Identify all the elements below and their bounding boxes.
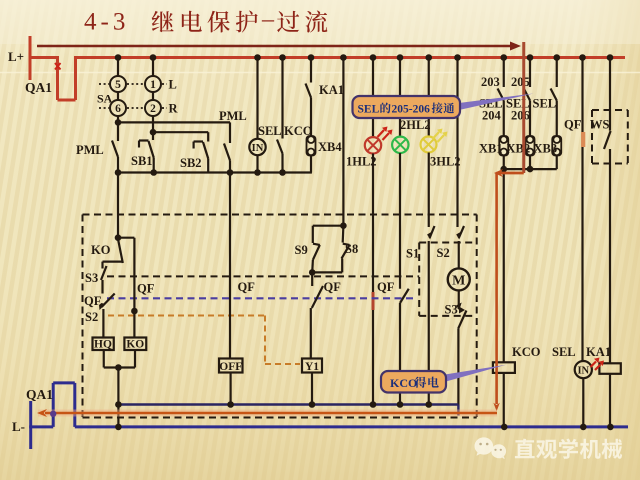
svg-text:QF: QF (84, 294, 102, 308)
svg-text:S2: S2 (85, 310, 98, 324)
svg-text:5: 5 (115, 79, 121, 91)
svg-text:L: L (169, 78, 177, 92)
svg-text:WS: WS (590, 118, 610, 132)
svg-text:XB2: XB2 (507, 142, 531, 156)
svg-text:XB4: XB4 (318, 140, 342, 154)
svg-text:XB3: XB3 (534, 142, 558, 156)
svg-text:S8: S8 (345, 242, 358, 256)
svg-text:IN: IN (577, 366, 589, 377)
svg-text:2: 2 (150, 103, 156, 115)
svg-text:S2: S2 (437, 246, 450, 260)
svg-text:3HL2: 3HL2 (430, 155, 461, 169)
svg-text:QF: QF (137, 282, 155, 296)
svg-text:4-3: 4-3 (84, 9, 129, 36)
svg-text:HQ: HQ (94, 339, 112, 351)
svg-text:KO: KO (126, 339, 144, 351)
svg-text:SEL: SEL (258, 124, 282, 138)
svg-text:206: 206 (511, 109, 530, 123)
svg-text:1: 1 (150, 79, 156, 91)
svg-text:205-206: 205-206 (392, 104, 431, 116)
svg-text:QF: QF (238, 280, 256, 294)
svg-text:1HL2: 1HL2 (346, 155, 377, 169)
svg-text:S3: S3 (85, 271, 98, 285)
svg-text:204: 204 (482, 109, 502, 123)
svg-text:KCO: KCO (390, 376, 417, 390)
svg-text:L-: L- (12, 419, 25, 434)
svg-text:QA1: QA1 (26, 387, 53, 402)
svg-text:SEL: SEL (358, 104, 380, 116)
svg-text:KCO: KCO (512, 345, 541, 359)
svg-text:205: 205 (511, 75, 530, 89)
svg-text:S9: S9 (295, 243, 308, 257)
svg-text:S1: S1 (406, 247, 419, 261)
svg-text:PML: PML (219, 109, 247, 123)
svg-text:SEL: SEL (533, 97, 557, 111)
svg-text:203: 203 (481, 75, 500, 89)
svg-text:KO: KO (91, 243, 111, 257)
svg-text:IN: IN (252, 143, 264, 154)
svg-text:XB1: XB1 (479, 142, 503, 156)
svg-text:S3: S3 (445, 303, 458, 317)
svg-text:SB1: SB1 (131, 154, 153, 168)
svg-text:OFF: OFF (219, 361, 242, 373)
svg-text:KA1: KA1 (319, 83, 344, 97)
svg-text:QA1: QA1 (25, 80, 52, 95)
svg-text:QF: QF (324, 280, 342, 294)
svg-text:SA: SA (97, 92, 113, 106)
svg-text:M: M (452, 274, 465, 289)
svg-text:KA1: KA1 (586, 345, 611, 359)
svg-text:R: R (169, 102, 179, 116)
svg-text:–: – (261, 7, 275, 33)
svg-text:QF: QF (377, 280, 395, 294)
svg-text:PML: PML (76, 143, 104, 157)
svg-text:SEL: SEL (552, 345, 576, 359)
svg-text:L+: L+ (8, 49, 24, 64)
svg-text:QF: QF (564, 118, 582, 132)
svg-text:SB2: SB2 (180, 156, 202, 170)
svg-text:2HL2: 2HL2 (400, 118, 431, 132)
svg-text:Y1: Y1 (305, 361, 319, 373)
svg-text:6: 6 (115, 103, 121, 115)
